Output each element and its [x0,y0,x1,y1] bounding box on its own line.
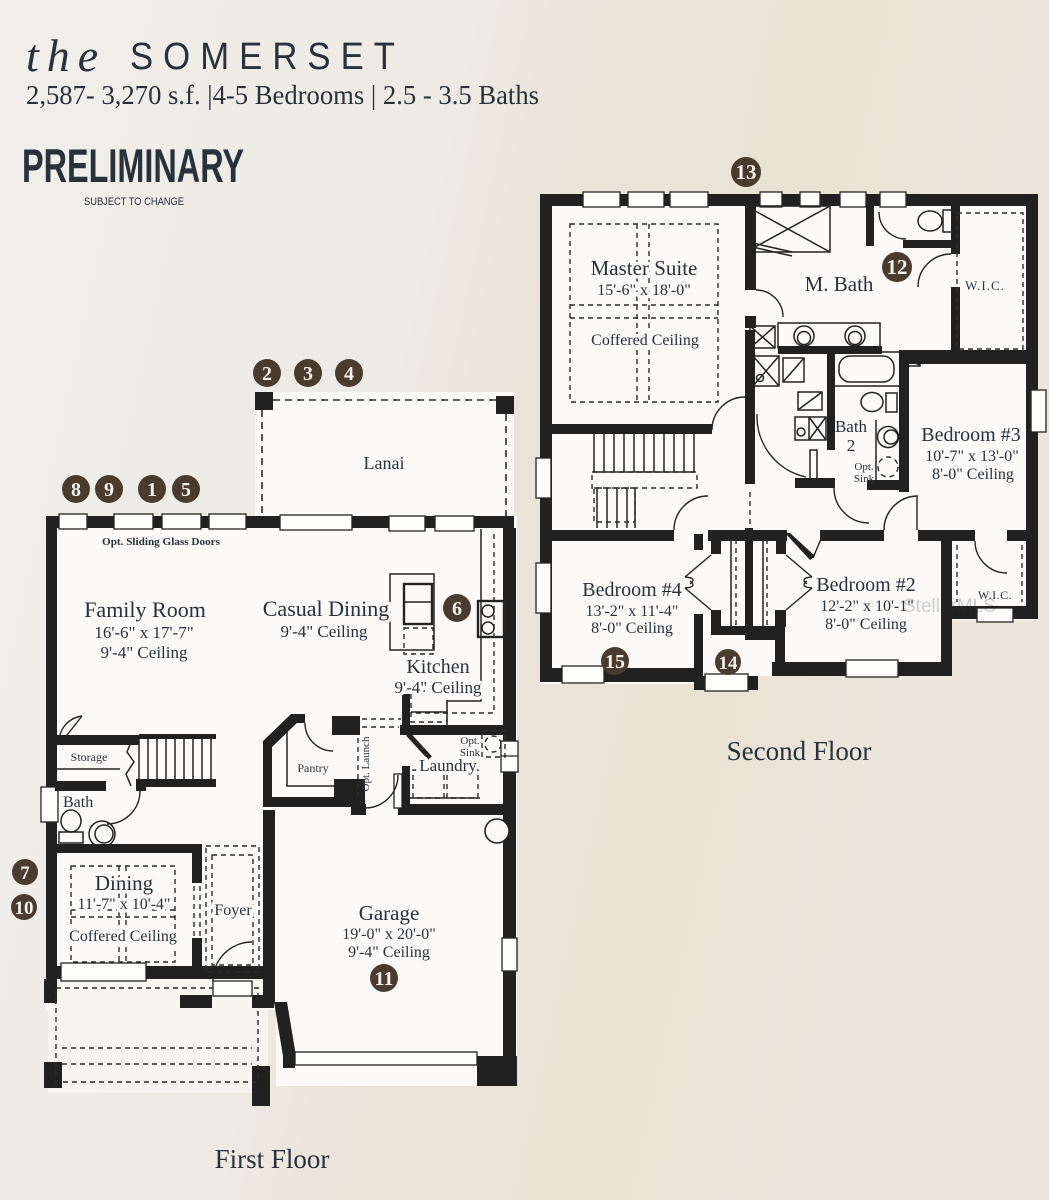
svg-text:6: 6 [452,598,462,620]
svg-text:11'-7" x 10'-4": 11'-7" x 10'-4" [78,896,171,913]
svg-text:Coffered Ceiling: Coffered Ceiling [69,928,177,945]
svg-text:2,587- 3,270 s.f. |4-5 Bedroom: 2,587- 3,270 s.f. |4-5 Bedrooms | 2.5 - … [26,80,539,110]
svg-text:SUBJECT TO CHANGE: SUBJECT TO CHANGE [84,196,184,208]
svg-text:Bath: Bath [63,794,93,811]
svg-text:9'-4" Ceiling: 9'-4" Ceiling [101,643,188,662]
svg-text:Master Suite: Master Suite [591,256,698,280]
svg-text:Second Floor: Second Floor [727,736,872,766]
svg-text:Sink: Sink [460,747,481,759]
svg-text:8'-0" Ceiling: 8'-0" Ceiling [591,620,673,637]
svg-text:Lanai: Lanai [364,453,405,473]
svg-text:Bath: Bath [835,417,868,436]
svg-text:13: 13 [736,160,757,184]
svg-text:9'-4" Ceiling: 9'-4" Ceiling [281,622,368,641]
svg-text:SOMERSET: SOMERSET [130,36,405,78]
svg-text:8'-0" Ceiling: 8'-0" Ceiling [932,466,1014,483]
svg-text:Opt. Launch: Opt. Launch [360,736,372,791]
svg-text:PRELIMINARY: PRELIMINARY [22,139,244,192]
svg-text:14: 14 [719,653,739,674]
svg-text:Opt.: Opt. [854,461,874,473]
svg-text:9'-4" Ceiling: 9'-4" Ceiling [348,944,430,961]
svg-text:Kitchen: Kitchen [406,656,469,678]
svg-text:Bedroom #3: Bedroom #3 [921,424,1020,446]
svg-text:10'-7" x 13'-0": 10'-7" x 13'-0" [925,448,1018,465]
svg-text:M. Bath: M. Bath [805,272,874,296]
svg-text:Dining: Dining [95,871,154,895]
svg-text:13'-2" x 11'-4": 13'-2" x 11'-4" [586,603,679,620]
svg-text:1: 1 [147,479,157,501]
svg-text:Bedroom #4: Bedroom #4 [582,579,681,601]
svg-text:15: 15 [605,651,625,673]
svg-text:Casual Dining: Casual Dining [263,596,390,621]
svg-text:Bedroom #2: Bedroom #2 [816,574,915,596]
svg-text:3: 3 [303,363,313,385]
svg-text:Opt. Sliding Glass Doors: Opt. Sliding Glass Doors [102,537,220,548]
svg-text:4: 4 [344,363,354,385]
svg-text:11: 11 [375,968,394,990]
svg-text:Garage: Garage [359,901,420,925]
svg-text:9'-4" Ceiling: 9'-4" Ceiling [395,678,482,697]
svg-text:15'-6" x 18'-0": 15'-6" x 18'-0" [597,282,690,299]
svg-text:5: 5 [181,479,191,501]
svg-text:2: 2 [847,436,856,455]
svg-text:8: 8 [71,479,81,501]
svg-text:Coffered Ceiling: Coffered Ceiling [591,332,699,349]
svg-text:First Floor: First Floor [215,1144,330,1174]
svg-text:Foyer: Foyer [214,902,252,919]
svg-text:16'-6" x 17'-7": 16'-6" x 17'-7" [94,623,193,642]
svg-text:8'-0" Ceiling: 8'-0" Ceiling [825,616,907,633]
svg-text:19'-0" x 20'-0": 19'-0" x 20'-0" [342,926,435,943]
svg-text:Sink: Sink [854,473,875,485]
svg-text:Opt.: Opt. [460,735,480,747]
svg-text:9: 9 [104,479,114,501]
svg-text:the: the [26,30,106,81]
svg-text:StellarMLS: StellarMLS [903,596,996,617]
svg-text:10: 10 [15,898,34,919]
svg-text:12'-2" x 10'-1": 12'-2" x 10'-1" [820,598,913,615]
svg-text:7: 7 [20,863,30,884]
svg-text:Pantry: Pantry [297,761,328,775]
svg-text:Family Room: Family Room [84,597,206,622]
svg-text:2: 2 [262,363,272,385]
svg-text:W.I.C.: W.I.C. [965,278,1005,293]
svg-text:Storage: Storage [71,750,108,764]
svg-text:12: 12 [887,255,908,279]
